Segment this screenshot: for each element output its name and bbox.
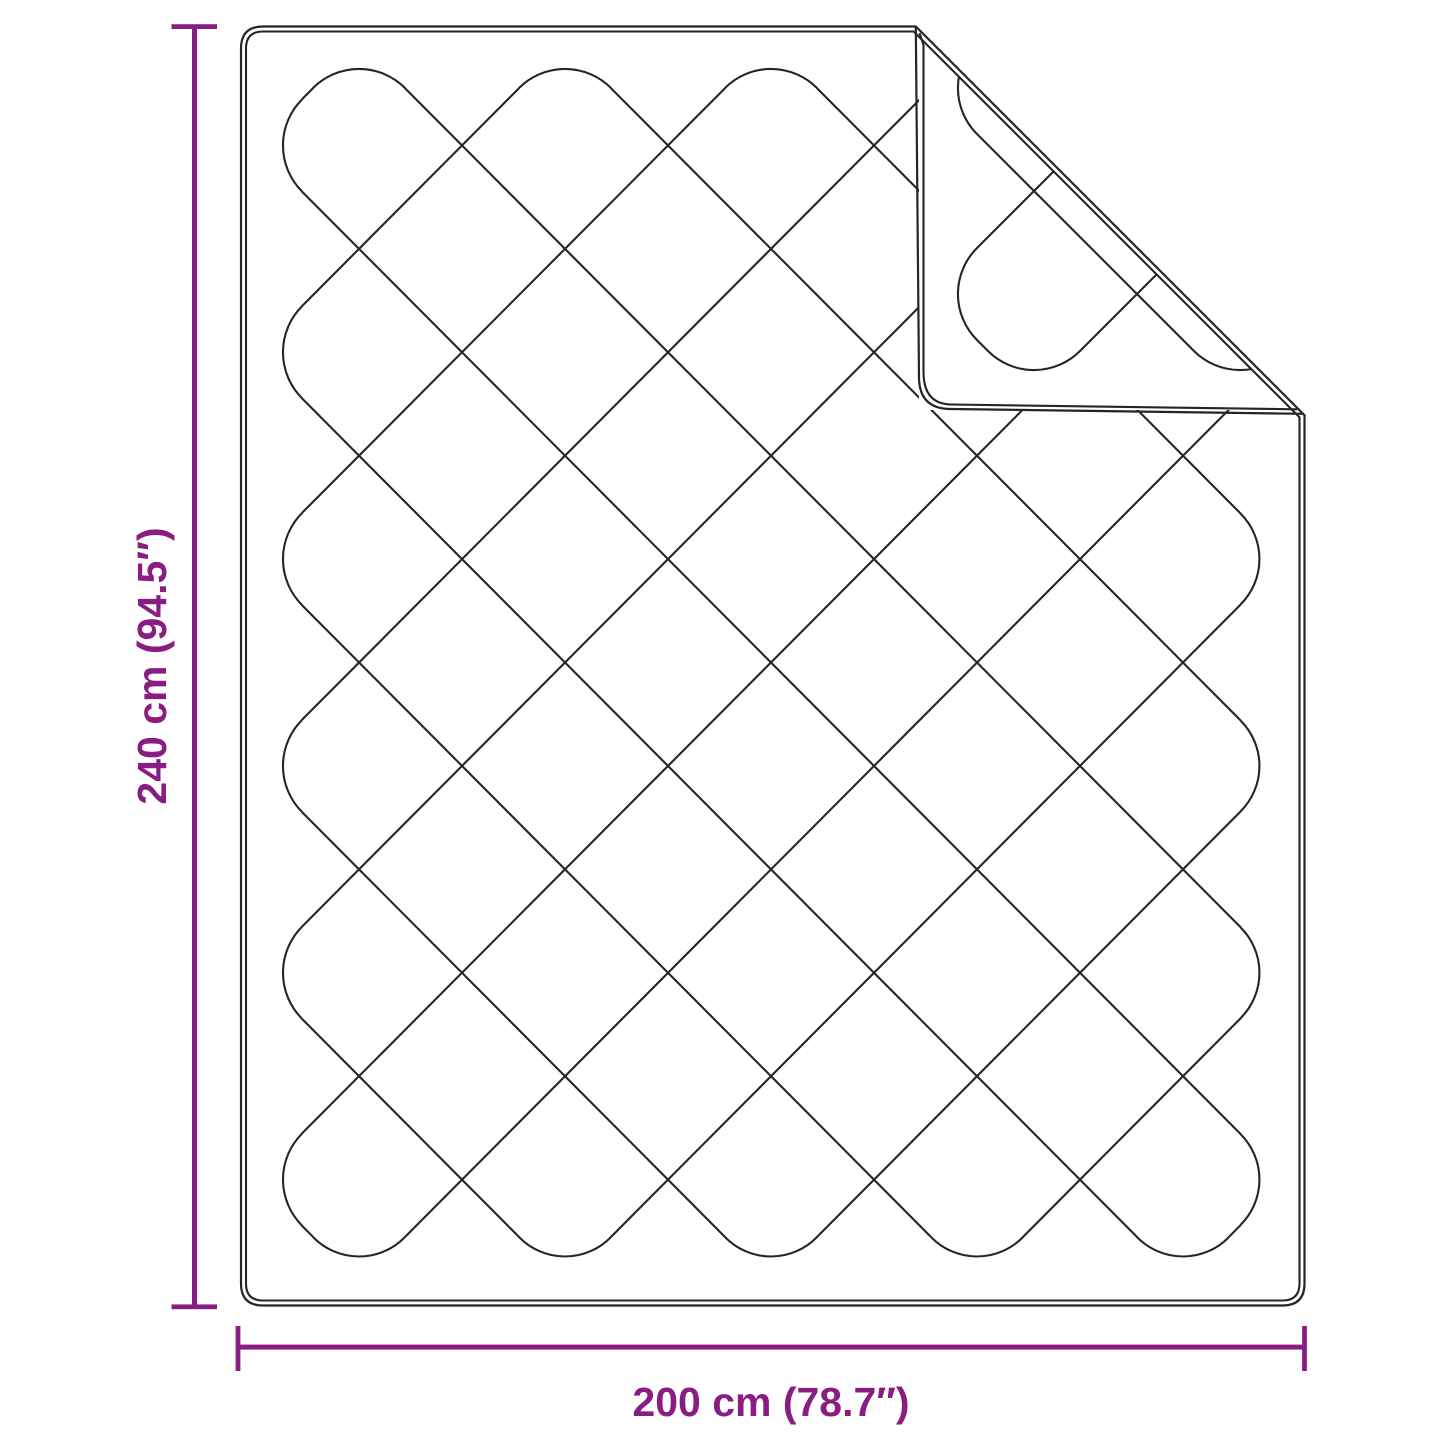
svg-text:240 cm (94.5″): 240 cm (94.5″) bbox=[129, 527, 175, 804]
svg-text:200 cm (78.7″): 200 cm (78.7″) bbox=[632, 1379, 909, 1425]
